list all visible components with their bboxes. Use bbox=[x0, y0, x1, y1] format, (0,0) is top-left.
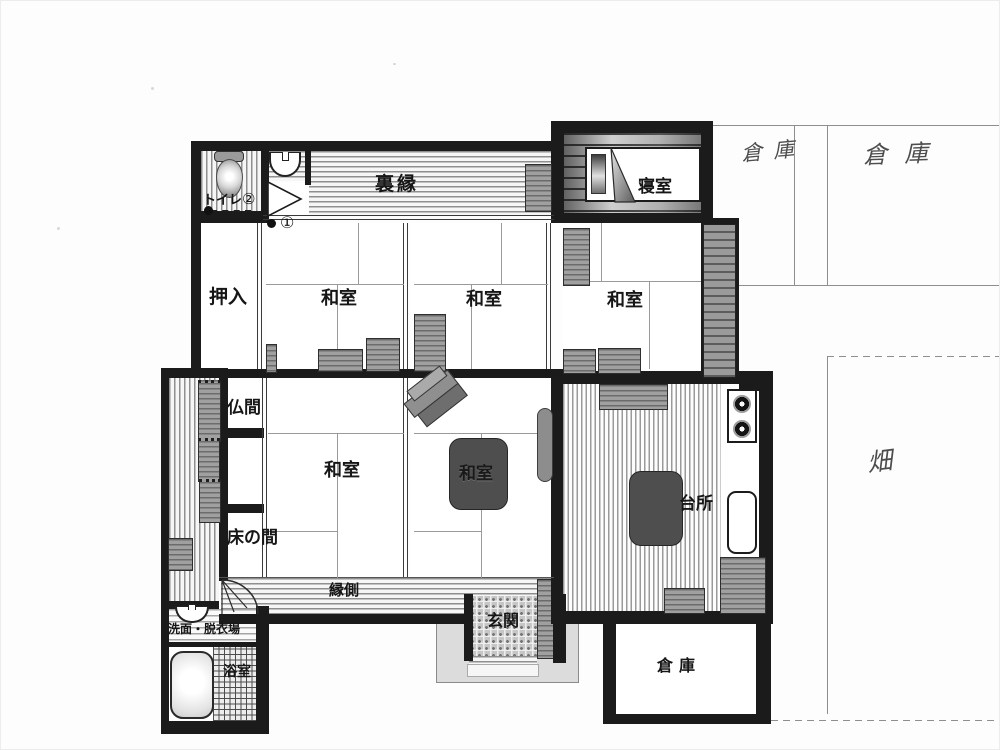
field-outline-bottom bbox=[771, 720, 1000, 721]
handwritten-field-label: 畑 bbox=[865, 441, 894, 480]
fusuma-track-line bbox=[262, 378, 267, 578]
corridor-cabinet bbox=[198, 380, 221, 442]
chest bbox=[563, 349, 596, 374]
wall-segment bbox=[305, 149, 311, 185]
field-outline-top bbox=[827, 356, 1000, 357]
wall-segment bbox=[603, 614, 616, 724]
chest bbox=[563, 228, 590, 286]
wall-segment bbox=[161, 721, 269, 734]
blanket-icon bbox=[609, 146, 639, 204]
room-label-entrance: 玄関 bbox=[487, 614, 519, 630]
wall-segment bbox=[169, 642, 257, 647]
cushion-icon bbox=[537, 408, 553, 482]
tatami-line bbox=[414, 284, 548, 285]
veranda-track-line bbox=[263, 215, 554, 220]
kitchen-sink-icon bbox=[727, 491, 757, 554]
room-label-tokonoma: 床の間 bbox=[227, 529, 278, 546]
wall-segment bbox=[739, 371, 773, 391]
door-swing-arc-icon bbox=[220, 578, 262, 616]
handwritten-storage-label-right: 倉庫 bbox=[862, 133, 945, 171]
annex-divider-2 bbox=[827, 125, 828, 286]
room-label-bathroom: 浴室 bbox=[223, 664, 251, 678]
wall-segment bbox=[553, 594, 566, 663]
hall-marker-number: ① bbox=[280, 216, 294, 232]
corridor-cabinet bbox=[199, 479, 221, 523]
wall-segment bbox=[219, 504, 264, 513]
tatami-line bbox=[501, 223, 502, 284]
chest bbox=[318, 349, 363, 372]
faucet-icon bbox=[282, 152, 289, 161]
scan-speck bbox=[151, 87, 154, 90]
wall-segment bbox=[219, 428, 264, 438]
tatami-line bbox=[268, 531, 337, 532]
tatami-line bbox=[414, 531, 481, 532]
wall-segment bbox=[256, 606, 269, 734]
wall-segment bbox=[554, 121, 713, 133]
room-label-toilet: トイレ② bbox=[203, 192, 255, 207]
door-pivot-dot bbox=[204, 206, 213, 215]
annex-outline-bottom bbox=[739, 285, 1000, 286]
corridor-cabinet bbox=[198, 438, 220, 482]
tatami-line bbox=[358, 223, 359, 284]
wall-segment bbox=[161, 368, 228, 378]
toilet-door-dash bbox=[211, 210, 251, 212]
bathroom-tile-floor bbox=[213, 646, 256, 721]
wall-segment bbox=[701, 121, 713, 223]
floor-plan-scan: 倉庫 倉庫 畑 bbox=[0, 0, 1000, 750]
chest bbox=[598, 348, 641, 374]
cabinet bbox=[525, 164, 552, 212]
stove-icon bbox=[727, 389, 757, 443]
room-label-japanese-room-2: 和室 bbox=[466, 290, 502, 308]
corridor-cabinet bbox=[168, 538, 193, 571]
rear-veranda-floor bbox=[309, 151, 551, 216]
wall-segment bbox=[191, 141, 564, 151]
field-outline-left bbox=[827, 356, 828, 714]
door-swing-icon bbox=[267, 181, 303, 218]
fusuma-track-line bbox=[546, 223, 551, 369]
tatami-line bbox=[601, 223, 602, 281]
wall-segment bbox=[756, 614, 771, 724]
room-label-japanese-room-3: 和室 bbox=[607, 291, 643, 309]
low-table-icon: 和室 bbox=[449, 438, 508, 510]
bathtub-icon bbox=[170, 651, 214, 719]
burner-icon bbox=[733, 420, 751, 438]
tatami-line bbox=[337, 433, 338, 578]
tatami-line bbox=[649, 281, 650, 369]
tatami-line bbox=[414, 433, 551, 434]
wall-segment bbox=[603, 614, 771, 624]
toilet-marker-number: ② bbox=[242, 191, 255, 208]
veranda-edge-line bbox=[219, 577, 554, 578]
kitchen-cabinet bbox=[599, 384, 668, 410]
tatami-line bbox=[268, 433, 404, 434]
door-pivot-dot bbox=[267, 219, 276, 228]
chest bbox=[366, 338, 400, 372]
wall-segment bbox=[191, 141, 201, 378]
pillow-icon bbox=[591, 154, 606, 194]
room-label-japanese-room-4: 和室 bbox=[324, 461, 360, 479]
room-label-veranda: 縁側 bbox=[329, 583, 359, 598]
room-label-storage: 倉庫 bbox=[657, 659, 701, 675]
faucet-icon bbox=[188, 604, 196, 610]
wall-segment bbox=[551, 371, 563, 624]
room-label-bedroom: 寝室 bbox=[638, 178, 672, 195]
fusuma-track-line bbox=[403, 223, 408, 369]
scan-speck bbox=[393, 63, 396, 65]
tatami-line bbox=[266, 284, 404, 285]
wall-segment bbox=[191, 211, 269, 223]
scan-speck bbox=[57, 227, 60, 230]
room-label-rear-veranda: 裏縁 bbox=[375, 175, 419, 194]
room-label-closet: 押入 bbox=[209, 288, 247, 307]
handwritten-storage-label-left: 倉庫 bbox=[740, 132, 806, 167]
annex-outline-top bbox=[708, 125, 1000, 126]
fusuma-track-line bbox=[257, 223, 262, 369]
kitchen-counter bbox=[720, 557, 766, 614]
entrance-step bbox=[469, 656, 537, 664]
kitchen-table-icon bbox=[629, 471, 683, 546]
room-label-kitchen: 台所 bbox=[679, 495, 713, 512]
room-label-butsuma: 仏間 bbox=[227, 399, 261, 416]
room-label-washroom: 洗面・脱衣場 bbox=[168, 623, 240, 635]
wall-closet-strip bbox=[703, 224, 736, 378]
wall-segment bbox=[551, 121, 564, 223]
wall-segment bbox=[554, 213, 713, 223]
kitchen-cabinet bbox=[664, 588, 705, 614]
burner-icon bbox=[733, 395, 751, 413]
wall-segment bbox=[603, 714, 771, 724]
porch-inner bbox=[467, 664, 539, 677]
room-label-japanese-room-1: 和室 bbox=[321, 289, 357, 307]
wall-segment bbox=[464, 594, 473, 661]
alcove-room bbox=[228, 438, 263, 504]
toilet-label-text: トイレ bbox=[203, 192, 242, 207]
room-label-japanese-room-5: 和室 bbox=[459, 465, 493, 482]
chest bbox=[266, 344, 277, 373]
